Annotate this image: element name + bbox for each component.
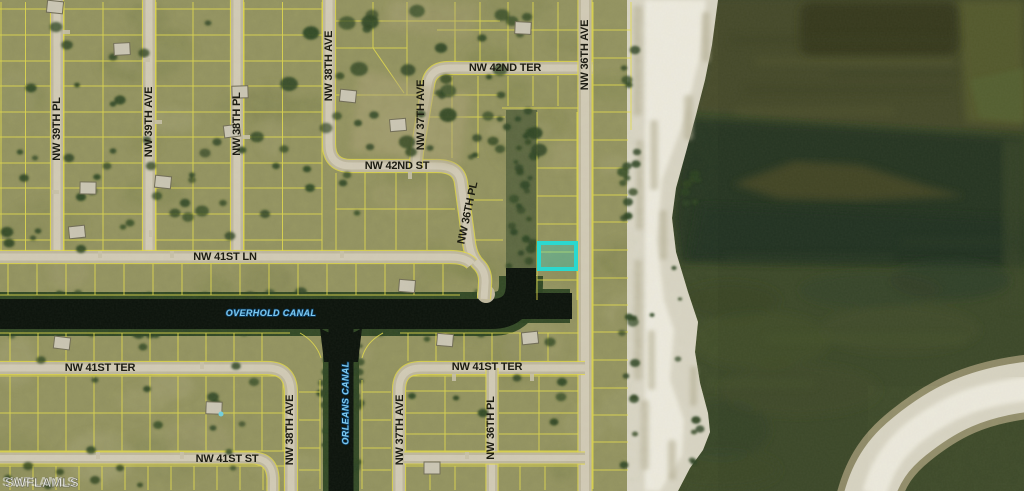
svg-text:ORLEANS CANAL: ORLEANS CANAL (340, 361, 350, 444)
svg-text:NW 41ST LN: NW 41ST LN (193, 251, 257, 263)
svg-text:NW 38TH PL: NW 38TH PL (231, 92, 243, 156)
svg-text:NW 37TH AVE: NW 37TH AVE (394, 395, 406, 466)
svg-text:NW 42ND TER: NW 42ND TER (469, 62, 542, 74)
svg-text:NW 38TH AVE: NW 38TH AVE (284, 395, 296, 466)
svg-text:NW 41ST ST: NW 41ST ST (196, 453, 259, 465)
svg-text:NW 39TH AVE: NW 39TH AVE (143, 87, 155, 158)
svg-text:NW 37TH AVE: NW 37TH AVE (415, 80, 427, 151)
svg-text:NW 42ND ST: NW 42ND ST (365, 160, 430, 172)
svg-text:NW 36TH PL: NW 36TH PL (485, 396, 497, 460)
svg-text:NW 41ST TER: NW 41ST TER (452, 361, 523, 373)
svg-text:NW 39TH PL: NW 39TH PL (51, 97, 63, 161)
svg-text:NW 36TH AVE: NW 36TH AVE (579, 20, 591, 91)
svg-text:NW 38TH AVE: NW 38TH AVE (323, 31, 335, 102)
svg-text:OVERHOLD CANAL: OVERHOLD CANAL (226, 308, 317, 318)
svg-text:NW 41ST TER: NW 41ST TER (65, 362, 136, 374)
svg-text:SWFLAMLS: SWFLAMLS (5, 475, 79, 490)
